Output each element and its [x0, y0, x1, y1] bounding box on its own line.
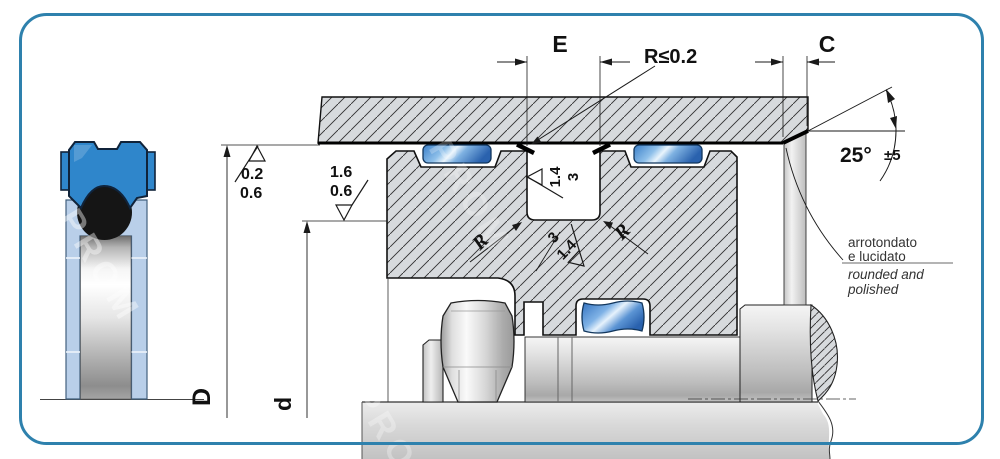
bore-wall-unsectioned: [784, 133, 806, 306]
roughness-triangle: [336, 205, 352, 220]
label-d: d: [270, 397, 296, 411]
note-english-line2: polished: [847, 282, 899, 297]
arrow-angle-bottom: [890, 116, 897, 129]
cylinder-wall-section: [318, 97, 808, 143]
rod-end-break-section: [810, 305, 837, 401]
roughness-root-value2: 0.6: [330, 183, 352, 200]
seal-cap-tab-left: [61, 152, 69, 190]
roughness-triangle: [527, 169, 542, 185]
installation-drawing: [318, 97, 856, 459]
label-D: D: [188, 388, 216, 406]
guide-ring-right: [634, 145, 702, 163]
arrow-C-right: [807, 59, 819, 66]
arrow-angle-top: [886, 89, 895, 103]
roughness-groove-side-values: 1.4 3: [547, 166, 582, 188]
angle-arc: [880, 90, 896, 181]
label-angle: 25°: [840, 144, 872, 167]
seal-cap-tab-right: [147, 152, 155, 190]
label-E: E: [552, 31, 567, 57]
angle-ref-inclined: [808, 87, 892, 131]
roughness-bore-value1: 0.2: [241, 166, 263, 183]
note-italian-line1: arrotondato: [848, 235, 917, 250]
note-italian-line2: e lucidato: [848, 249, 906, 264]
arrow-C-left: [771, 59, 783, 66]
label-corner-radius: R≤0.2: [644, 46, 697, 68]
label-C: C: [819, 31, 836, 57]
seal-installation-drawing: E C R≤0.2 25° ±5 D d R R 0.2 0.6 1.6 0.6…: [0, 0, 1000, 459]
arrow-E-right: [600, 59, 612, 66]
roughness-root-value1: 1.6: [330, 164, 352, 181]
roughness-bore-value2: 0.6: [240, 185, 262, 202]
label-angle-tolerance: ±5: [884, 147, 901, 164]
arrow-E-left: [515, 59, 527, 66]
roughness-side-value1: 1.4: [547, 166, 564, 188]
rod-nut: [441, 301, 514, 403]
rod-body: [362, 402, 830, 459]
rod-shoulder: [740, 305, 812, 402]
arrow-D: [224, 145, 231, 157]
rod-under-piston: [525, 337, 740, 402]
note-english-line1: rounded and: [848, 267, 924, 282]
roughness-tail: [352, 180, 368, 205]
roughness-side-value2: 3: [565, 173, 582, 181]
static-seal: [582, 301, 644, 333]
washer: [423, 340, 443, 402]
arrow-d: [304, 221, 311, 233]
drawing-svg: E C R≤0.2 25° ±5 D d R R 0.2 0.6 1.6 0.6…: [0, 0, 1000, 459]
